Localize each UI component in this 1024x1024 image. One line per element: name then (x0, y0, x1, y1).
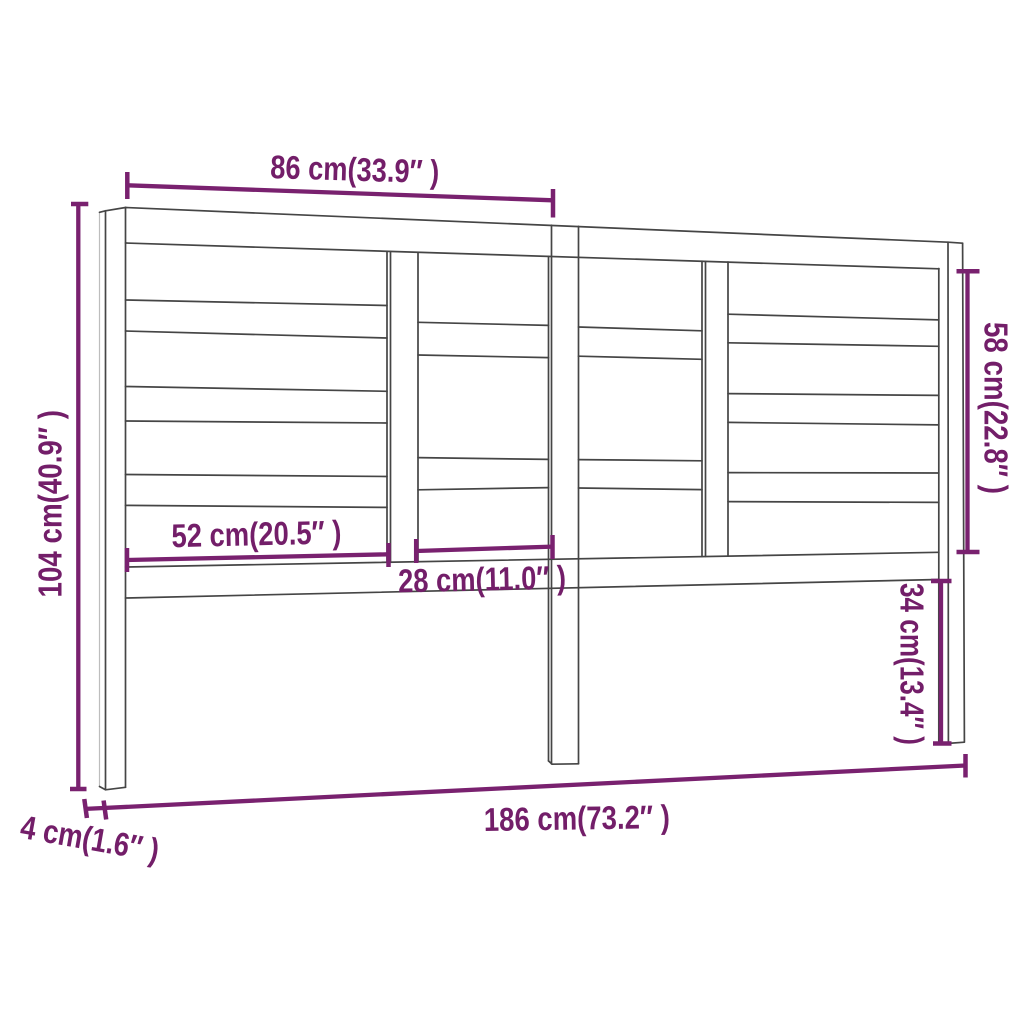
svg-text:34 cm(13.4″ ): 34 cm(13.4″ ) (894, 583, 931, 745)
svg-text:104 cm(40.9″ ): 104 cm(40.9″ ) (32, 410, 69, 598)
svg-text:86 cm(33.9″ ): 86 cm(33.9″ ) (270, 148, 440, 190)
svg-text:52 cm(20.5″ ): 52 cm(20.5″ ) (171, 513, 342, 554)
svg-text:186 cm(73.2″ ): 186 cm(73.2″ ) (484, 798, 671, 838)
svg-text:58 cm(22.8″ ): 58 cm(22.8″ ) (978, 322, 1015, 494)
svg-text:28 cm(11.0″ ): 28 cm(11.0″ ) (398, 559, 567, 600)
